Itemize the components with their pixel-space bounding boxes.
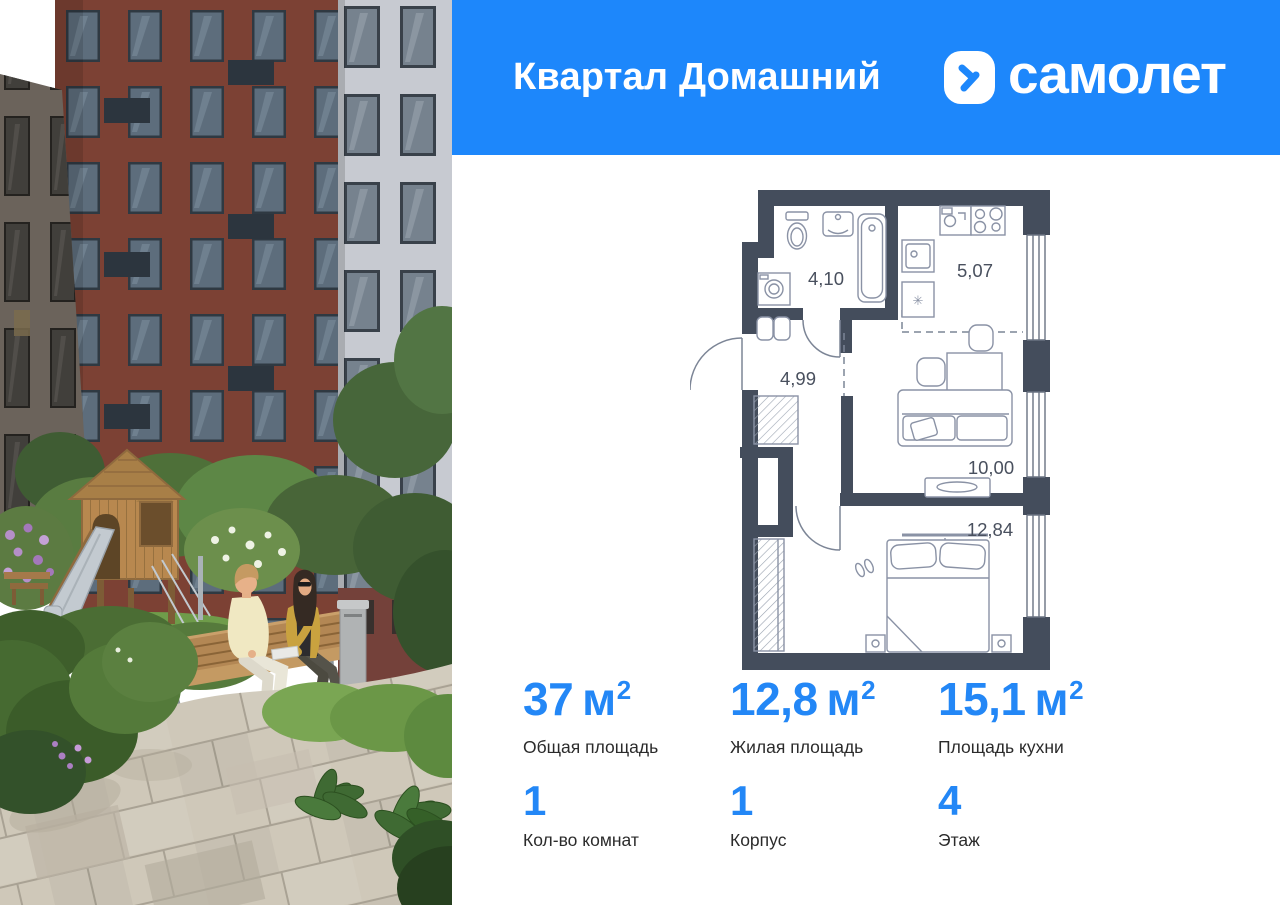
stat-label: Корпус [730,830,786,851]
stat-label: Жилая площадь [730,737,875,758]
brand-name: самолет [1008,47,1226,102]
sofa-symbol [898,390,1012,446]
stat-label: Общая площадь [523,737,658,758]
trash-bin [337,600,369,694]
project-title: Квартал Домашний [513,56,881,99]
room-label-bedroom: 12,84 [967,519,1013,540]
sink-symbol [823,212,853,236]
bathtub-symbol [858,214,886,302]
floor-plan: ✳ [690,186,1110,670]
room-label-kitchen: 5,07 [957,260,993,281]
stat-building-number: 1 Корпус [730,780,786,851]
apartment-card: Квартал Домашний самолет [452,0,1280,905]
stat-kitchen-area: 15,1м2 Площадь кухни [938,676,1083,758]
toilet-symbol [786,212,808,249]
slippers-symbol [854,558,875,578]
listing-card: Квартал Домашний самолет [0,0,1280,905]
stat-living-area: 12,8м2 Жилая площадь [730,676,875,758]
courtyard-photo [0,0,452,905]
stove-symbol [971,206,1005,235]
room-label-living: 10,00 [968,457,1014,478]
desk-symbol [917,325,1002,392]
bed-symbol [887,540,989,652]
header-banner: Квартал Домашний самолет [452,0,1280,155]
svg-text:✳: ✳ [913,293,924,308]
stat-label: Кол-во комнат [523,830,639,851]
stat-label: Площадь кухни [938,737,1083,758]
kitchen-unit-symbol [902,240,934,272]
fridge-symbol: ✳ [902,282,934,317]
stat-total-area: 37м2 Общая площадь [523,676,658,758]
stat-label: Этаж [938,830,980,851]
tv-console-symbol [925,478,990,497]
shoe-bench-symbol [757,317,790,340]
stat-rooms-count: 1 Кол-во комнат [523,780,639,851]
washing-machine-symbol [758,273,790,305]
kitchen-sink-symbol [940,206,971,235]
samolet-logo: самолет [944,50,1226,105]
window-symbols [1027,235,1045,617]
samolet-logo-icon [944,51,995,104]
room-label-hallway: 4,99 [780,368,816,389]
stat-floor-number: 4 Этаж [938,780,980,851]
room-label-bathroom: 4,10 [808,268,844,289]
